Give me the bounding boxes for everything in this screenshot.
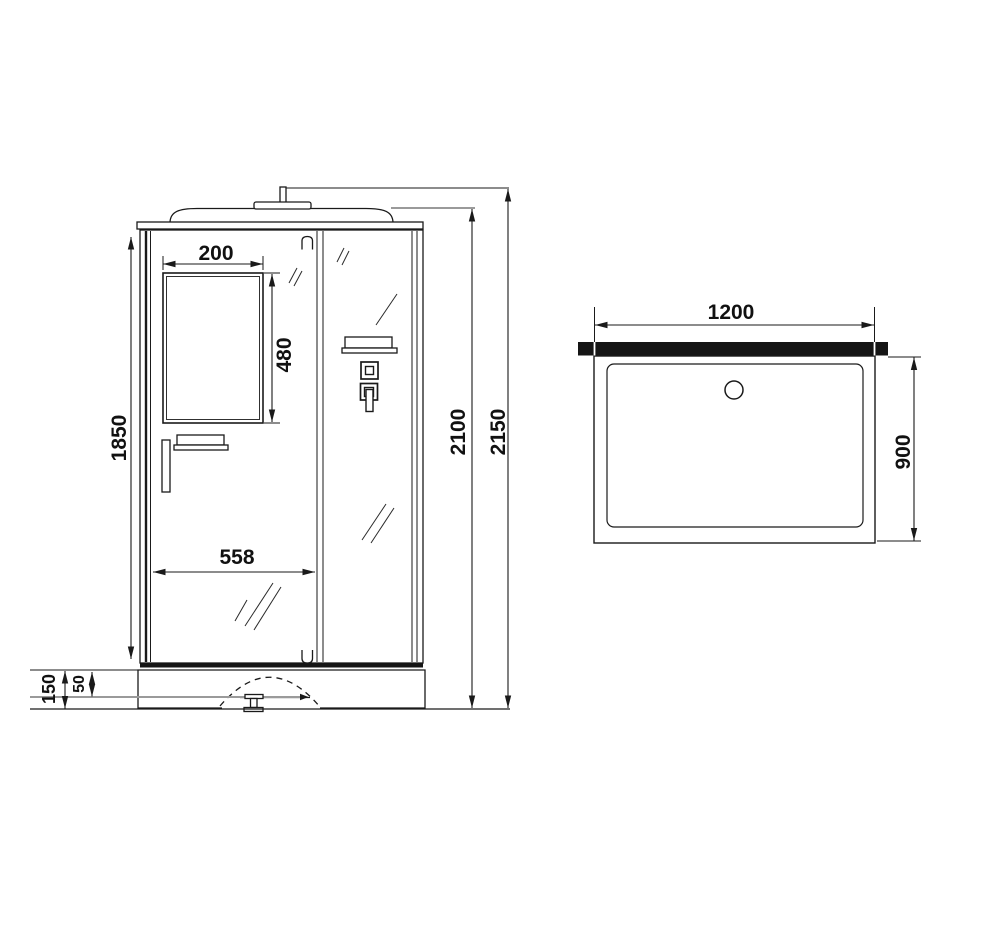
glass-mark bbox=[254, 587, 281, 630]
top-view: 1200 900 bbox=[578, 301, 921, 543]
base-notch-arc bbox=[220, 677, 320, 707]
tray-outline bbox=[594, 356, 875, 543]
roof-dome bbox=[170, 209, 393, 224]
left-shelf-flange bbox=[174, 445, 228, 450]
glass-mark bbox=[289, 268, 297, 283]
dim-label-tray-inner-depth: 50 bbox=[71, 675, 88, 693]
dim-label-mirror-height: 480 bbox=[273, 337, 296, 372]
left-shelf bbox=[177, 435, 224, 445]
technical-drawing-page: 200 480 558 1850 2100 2150 150 50 bbox=[0, 0, 1000, 927]
roof-cap bbox=[254, 202, 311, 209]
cabin-bottom-band bbox=[140, 663, 423, 668]
mirror-inner-frame bbox=[167, 277, 260, 420]
dim-label-width: 1200 bbox=[708, 301, 755, 324]
handle-bar bbox=[162, 440, 170, 492]
control-knob-top-inner bbox=[366, 367, 374, 375]
dim-label-body-height: 1850 bbox=[108, 415, 131, 462]
right-shelf bbox=[345, 337, 392, 348]
glass-mark bbox=[294, 271, 302, 286]
glass-mark bbox=[362, 504, 386, 540]
tray-level-arrowhead bbox=[300, 694, 309, 700]
glass-mark bbox=[337, 248, 344, 262]
glass-mark bbox=[342, 251, 349, 265]
dim-label-opening-width: 558 bbox=[219, 546, 254, 569]
tray-inner-outline bbox=[607, 364, 863, 527]
drain-hole bbox=[725, 381, 743, 399]
dim-label-total-height: 2150 bbox=[487, 409, 510, 456]
glass-mark bbox=[235, 600, 247, 621]
dim-label-mirror-width: 200 bbox=[198, 242, 233, 265]
back-wall-bar bbox=[578, 342, 888, 356]
glass-mark bbox=[376, 294, 397, 325]
foot-stem bbox=[251, 699, 258, 708]
mirror bbox=[163, 273, 263, 423]
right-shelf-flange bbox=[342, 348, 397, 353]
dim-label-roof-height: 2100 bbox=[447, 409, 470, 456]
glass-mark bbox=[245, 583, 273, 626]
dim-label-depth: 900 bbox=[892, 434, 915, 469]
base-skirt bbox=[138, 670, 425, 708]
control-knob-top bbox=[361, 362, 378, 379]
dim-label-base-height: 150 bbox=[39, 674, 59, 704]
glass-mark bbox=[371, 508, 394, 543]
knob-lever bbox=[366, 390, 373, 412]
front-view: 200 480 558 1850 2100 2150 150 50 bbox=[30, 187, 510, 712]
shower-cabin-drawing: 200 480 558 1850 2100 2150 150 50 bbox=[0, 0, 1000, 927]
door-handle-top bbox=[302, 237, 313, 250]
roof-band bbox=[137, 222, 423, 229]
door-handle-bottom bbox=[302, 650, 313, 663]
